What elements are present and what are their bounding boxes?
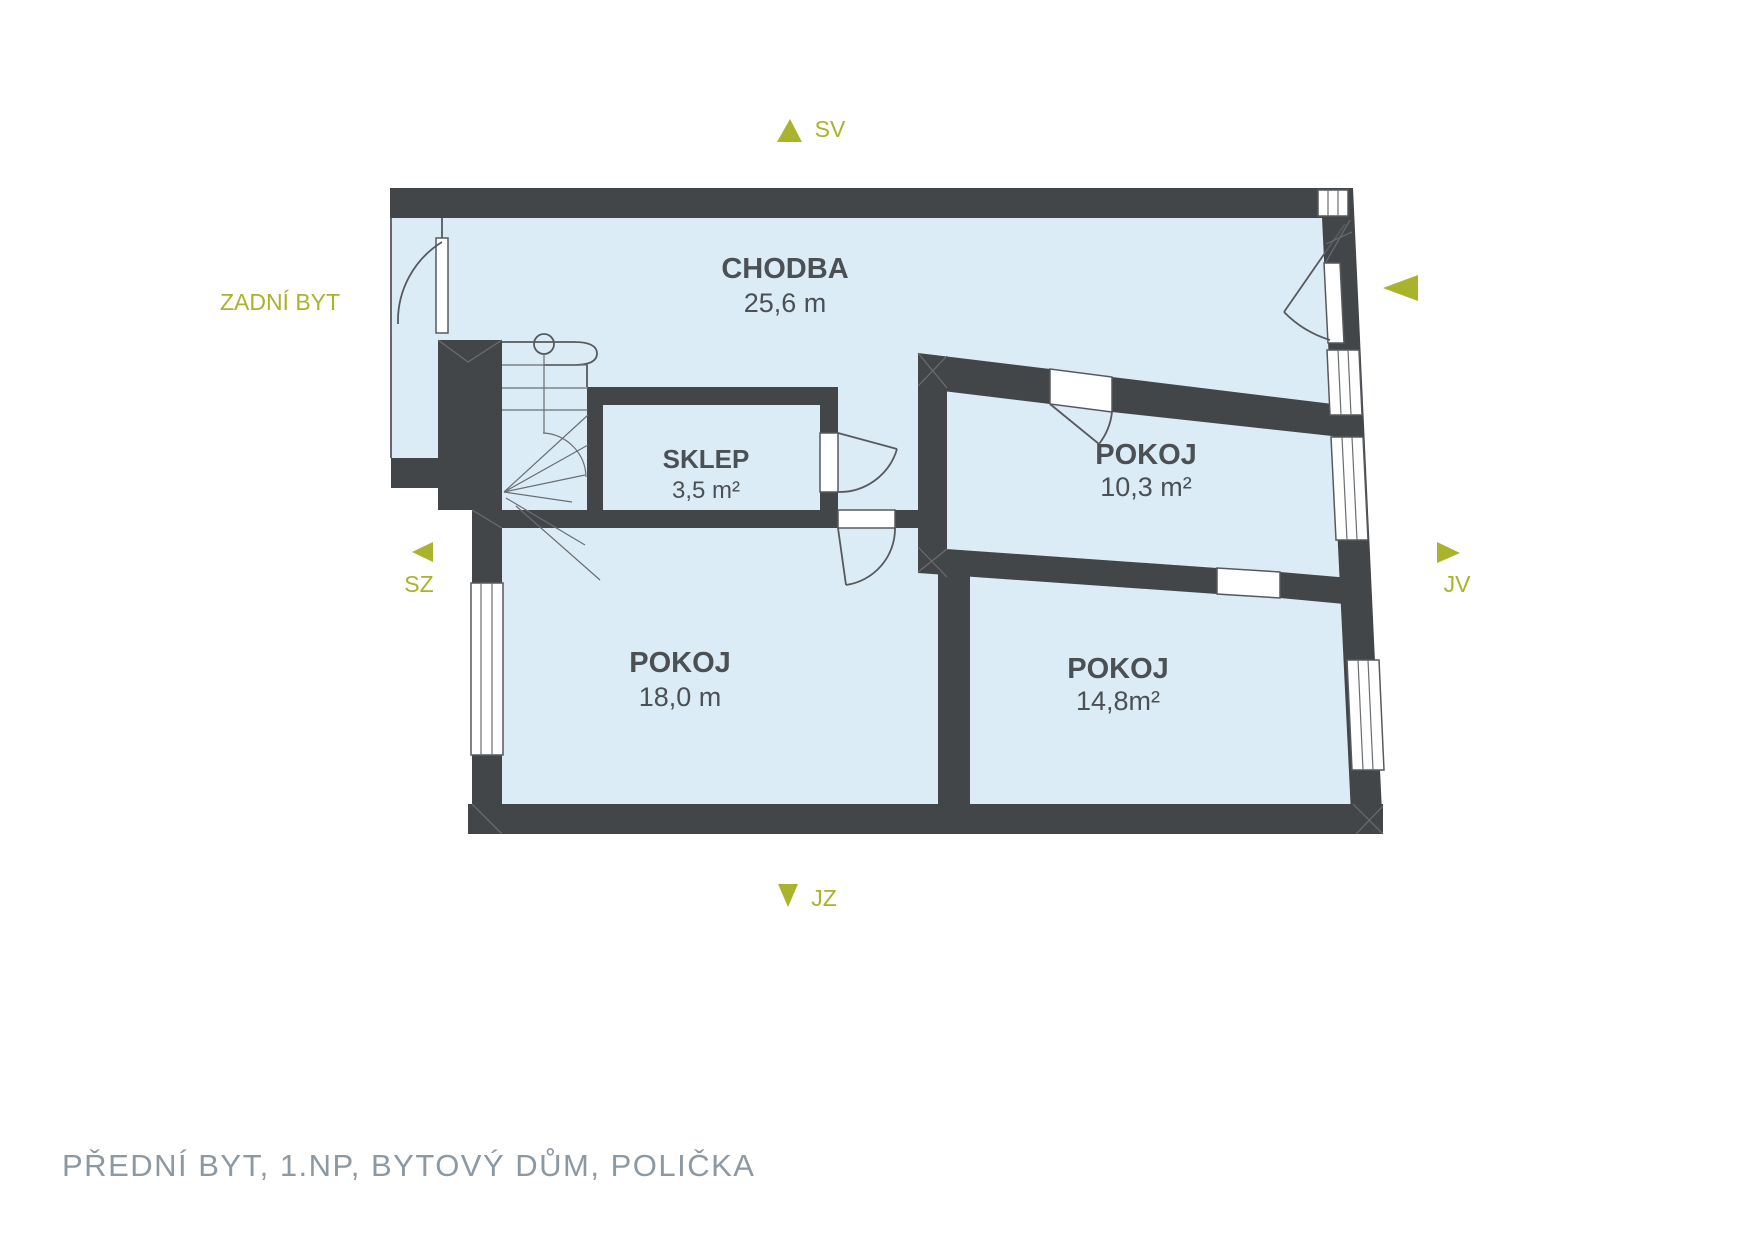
- room-area-pokoj103: 10,3 m²: [1100, 472, 1192, 502]
- arrow-left-icon: [412, 542, 433, 562]
- room-name-pokoj103: POKOJ: [1095, 439, 1197, 471]
- window-right-chodba: [1327, 350, 1362, 415]
- neighbor-apartment-label: ZADNÍ BYT: [220, 289, 340, 315]
- arrow-up-icon: [777, 119, 802, 142]
- plan-caption: PŘEDNÍ BYT, 1.NP, BYTOVÝ DŮM, POLIČKA: [62, 1147, 755, 1183]
- room-name-sklep: SKLEP: [663, 444, 750, 474]
- room-area-pokoj148: 14,8m²: [1076, 686, 1160, 716]
- room-name-pokoj148: POKOJ: [1067, 653, 1169, 685]
- window-right-pokoj103: [1331, 437, 1368, 540]
- window-top-right: [1318, 190, 1348, 216]
- floorplan-page: CHODBA 25,6 m SKLEP 3,5 m² POKOJ 10,3 m²…: [0, 0, 1754, 1241]
- compass-label-jv: JV: [1444, 571, 1472, 597]
- floorplan-drawing: CHODBA 25,6 m SKLEP 3,5 m² POKOJ 10,3 m²…: [0, 0, 1754, 1241]
- compass-label-sz: SZ: [404, 571, 433, 597]
- window-right-pokoj148: [1347, 660, 1384, 770]
- opening-pokoj103-pokoj148: [1217, 568, 1280, 598]
- room-area-sklep: 3,5 m²: [672, 477, 740, 504]
- room-name-pokoj18: POKOJ: [629, 647, 731, 679]
- arrow-down-icon: [778, 884, 798, 907]
- compass-label-sv: SV: [815, 116, 846, 142]
- compass-label-jz: JZ: [811, 885, 837, 911]
- room-name-chodba: CHODBA: [721, 253, 848, 285]
- room-area-chodba: 25,6 m: [744, 288, 827, 318]
- entrance-arrow-left-icon: [1383, 275, 1418, 301]
- room-area-pokoj18: 18,0 m: [639, 682, 722, 712]
- window-left-pokoj18: [471, 583, 503, 755]
- arrow-right-icon: [1437, 542, 1460, 563]
